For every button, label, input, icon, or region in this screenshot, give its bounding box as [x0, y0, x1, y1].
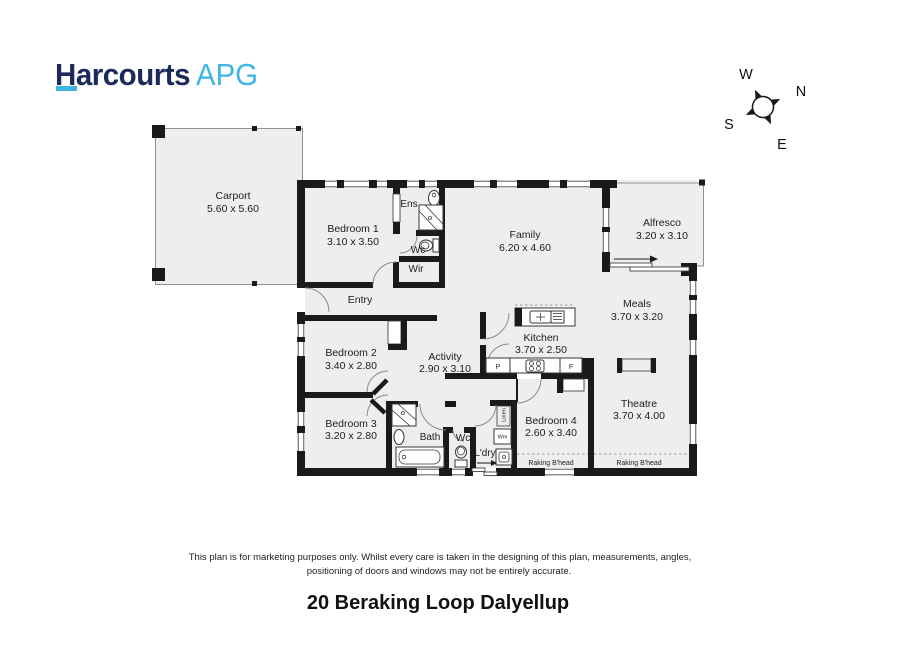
activity-dims: 2.90 x 3.10: [419, 363, 471, 375]
logo-underline: [56, 86, 77, 91]
wc-lower-label: Wc: [456, 433, 470, 444]
bedroom3-dims: 3.20 x 2.80: [325, 430, 377, 442]
theatre-name: Theatre: [621, 398, 657, 410]
room-label-alfresco: Alfresco 3.20 x 3.10: [636, 217, 688, 242]
room-label-bedroom3: Bedroom 3 3.20 x 2.80: [325, 418, 377, 442]
activity-name: Activity: [428, 351, 462, 363]
floorplan-page: Harcourts APG W N S E: [0, 0, 900, 657]
entry-label: Entry: [348, 294, 373, 306]
room-label-bedroom4: Bedroom 4 2.60 x 3.40: [525, 415, 577, 439]
alfresco-name: Alfresco: [643, 217, 681, 229]
carport-post: [152, 125, 165, 138]
compass-icon: W N S E: [724, 67, 806, 153]
laundry-trough: [496, 449, 512, 465]
page-title-address: 20 Beraking Loop Dalyellup: [307, 592, 569, 614]
floor-plan-canvas: Harcourts APG W N S E: [0, 0, 900, 657]
hall-cavity-slider: [563, 379, 584, 391]
room-label-bedroom2: Bedroom 2 3.40 x 2.80: [325, 347, 377, 372]
cooktop-icon: [526, 360, 544, 372]
bath-basin: [394, 430, 404, 445]
raking-bulkhead-left-label: Raking B'head: [528, 460, 573, 467]
wir-label: Wir: [409, 264, 425, 275]
kitchen-name: Kitchen: [523, 332, 558, 344]
ensuite-basin: [429, 191, 440, 206]
compass-east-label: E: [777, 137, 787, 153]
meals-dims: 3.70 x 3.20: [611, 311, 663, 323]
ensuite-cavity-slider: [393, 194, 400, 222]
entry-door-opening: [297, 288, 305, 312]
wc-upper-label: Wc: [411, 245, 425, 256]
carport-dims: 5.60 x 5.60: [207, 203, 259, 215]
family-name: Family: [510, 229, 542, 241]
logo-suffix-text: APG: [196, 57, 258, 92]
carport-post: [152, 268, 165, 281]
compass-south-label: S: [724, 117, 734, 133]
compass-west-label: W: [739, 67, 753, 83]
kitchen-bench: [486, 358, 582, 373]
ensuite-label: Ens: [400, 199, 417, 210]
alfresco-dims: 3.20 x 3.10: [636, 230, 688, 242]
bedroom2-cavity-slider: [388, 321, 401, 344]
fridge-label: F: [569, 364, 573, 371]
raking-bulkhead-right-label: Raking B'head: [616, 460, 661, 467]
kitchen-island: [515, 305, 575, 326]
family-dims: 6.20 x 4.60: [499, 242, 551, 254]
meals-name: Meals: [623, 298, 651, 310]
washing-machine-label: Wm: [498, 435, 508, 441]
pantry-label: P: [496, 364, 501, 371]
wc-lower-toilet: [455, 446, 467, 467]
footer: This plan is for marketing purposes only…: [189, 552, 692, 614]
room-label-bedroom1: Bedroom 1 3.10 x 3.50: [327, 223, 379, 248]
harcourts-logo: Harcourts APG: [55, 57, 258, 92]
compass-north-label: N: [796, 84, 806, 100]
disclaimer-line2: positioning of doors and windows may not…: [307, 566, 572, 577]
carport-name: Carport: [215, 190, 250, 202]
bedroom2-name: Bedroom 2: [325, 347, 377, 359]
bedroom2-dims: 3.40 x 2.80: [325, 360, 377, 372]
bedroom1-dims: 3.10 x 3.50: [327, 236, 379, 248]
disclaimer-line1: This plan is for marketing purposes only…: [189, 552, 692, 563]
bath-label: Bath: [420, 432, 441, 443]
laundry-label: L'dry: [474, 448, 495, 459]
bath-shower: [392, 404, 416, 426]
bedroom4-dims: 2.60 x 3.40: [525, 427, 577, 439]
bedroom1-name: Bedroom 1: [327, 223, 379, 235]
ensuite-shower: [419, 205, 443, 230]
kitchen-dims: 3.70 x 2.50: [515, 344, 567, 356]
linen-label: Linen: [502, 408, 508, 422]
bathtub: [396, 447, 444, 467]
theatre-dims: 3.70 x 4.00: [613, 410, 665, 422]
bedroom4-name: Bedroom 4: [525, 415, 577, 427]
bedroom4-door-opening: [517, 373, 541, 379]
bedroom3-name: Bedroom 3: [325, 418, 377, 430]
